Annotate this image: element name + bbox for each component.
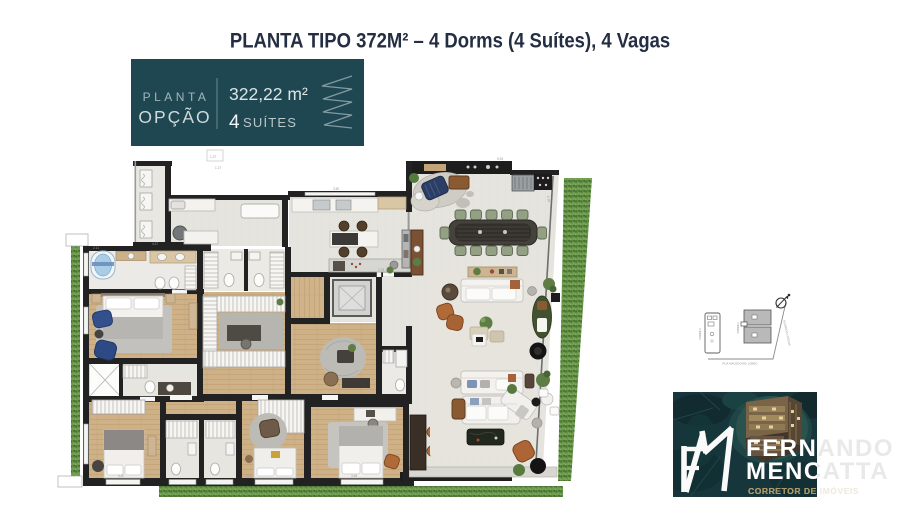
svg-text:TORRE 2: TORRE 2 xyxy=(698,328,702,340)
svg-text:PLANTA TIPO 372M² – 4 Dorms (4: PLANTA TIPO 372M² – 4 Dorms (4 Suítes), … xyxy=(230,29,670,52)
svg-text:1.27: 1.27 xyxy=(215,166,221,170)
svg-text:322,22 m²: 322,22 m² xyxy=(229,84,308,104)
svg-text:2.11: 2.11 xyxy=(93,246,99,250)
svg-text:PLANTA: PLANTA xyxy=(143,90,210,104)
svg-text:4.27: 4.27 xyxy=(152,242,158,246)
svg-text:3.20: 3.20 xyxy=(118,474,124,478)
svg-text:RUA MACEDONIO LOBEO: RUA MACEDONIO LOBEO xyxy=(722,362,758,366)
svg-text:3.02: 3.02 xyxy=(246,474,252,478)
svg-text:OPÇÃO: OPÇÃO xyxy=(138,106,211,127)
svg-text:6.94: 6.94 xyxy=(497,157,503,161)
svg-text:TORRE 1: TORRE 1 xyxy=(736,322,740,334)
svg-text:1.27: 1.27 xyxy=(210,155,216,159)
svg-text:SUÍTES: SUÍTES xyxy=(243,115,297,130)
svg-text:2.75: 2.75 xyxy=(378,268,384,272)
svg-text:3.46: 3.46 xyxy=(351,474,357,478)
svg-text:4: 4 xyxy=(229,112,240,133)
svg-text:3.50: 3.50 xyxy=(333,187,339,191)
